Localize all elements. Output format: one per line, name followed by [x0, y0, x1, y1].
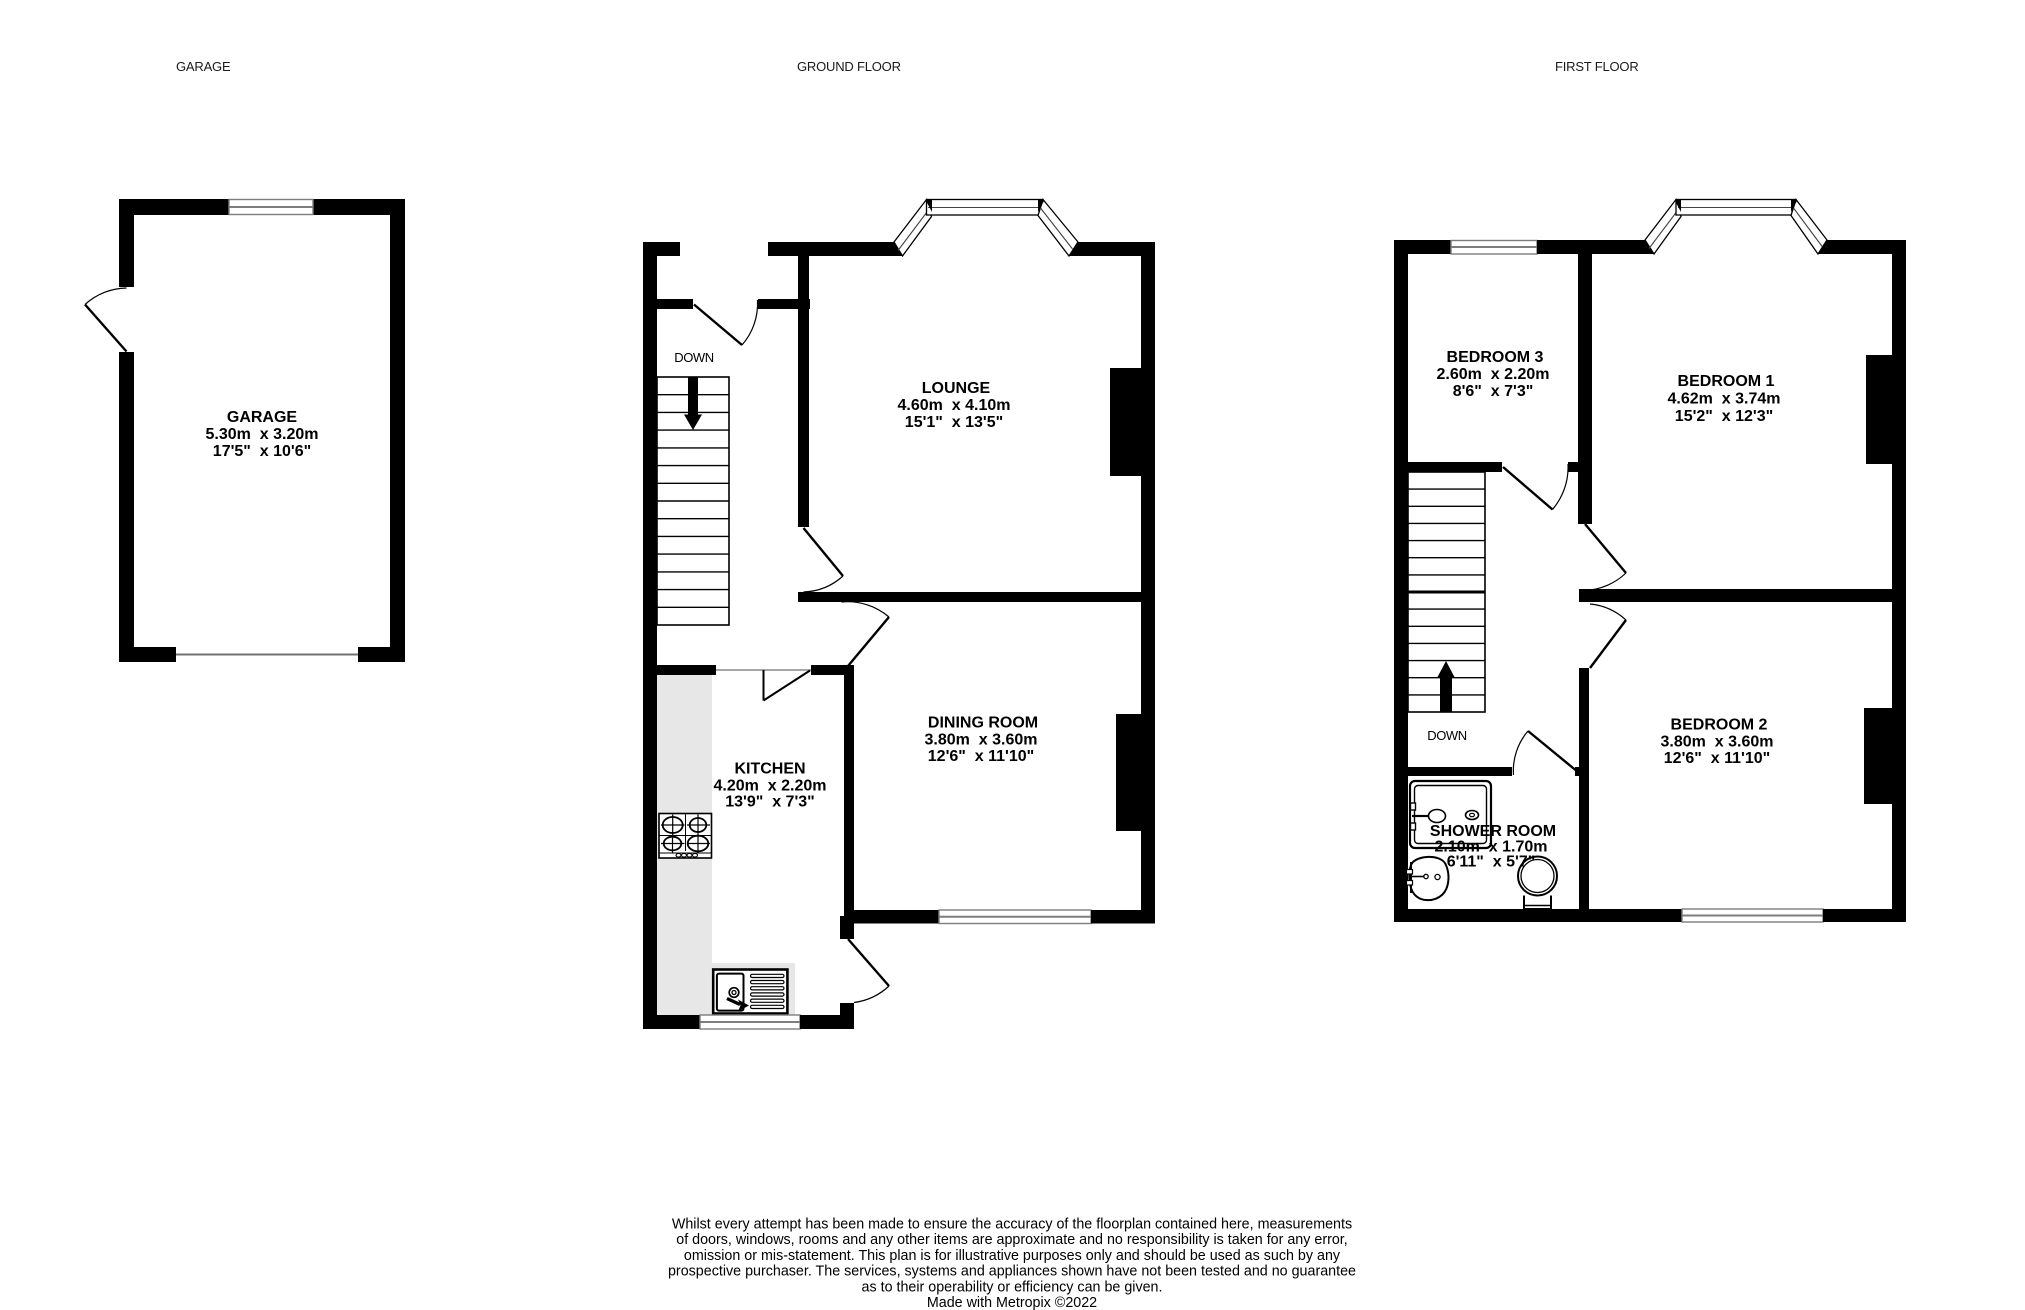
- svg-text:FIRST FLOOR: FIRST FLOOR: [1555, 59, 1639, 74]
- svg-text:4.62m x 3.74m: 4.62m x 3.74m: [1668, 391, 1781, 408]
- svg-text:Made with Metropix ©2022: Made with Metropix ©2022: [927, 1295, 1097, 1310]
- svg-text:omission or mis-statement. Thi: omission or mis-statement. This plan is …: [684, 1248, 1341, 1264]
- svg-text:DOWN: DOWN: [674, 350, 714, 365]
- svg-text:2.60m x 2.20m: 2.60m x 2.20m: [1437, 366, 1550, 383]
- svg-text:of doors, windows, rooms and a: of doors, windows, rooms and any other i…: [676, 1232, 1348, 1248]
- svg-text:GARAGE: GARAGE: [227, 409, 298, 426]
- svg-text:3.80m x 3.60m: 3.80m x 3.60m: [925, 732, 1038, 749]
- svg-text:15'1" x 13'5": 15'1" x 13'5": [905, 414, 1003, 431]
- svg-text:12'6" x 11'10": 12'6" x 11'10": [928, 748, 1034, 765]
- svg-text:12'6" x 11'10": 12'6" x 11'10": [1664, 750, 1770, 767]
- svg-text:DINING ROOM: DINING ROOM: [928, 715, 1038, 732]
- svg-text:17'5" x 10'6": 17'5" x 10'6": [213, 443, 311, 460]
- svg-text:Whilst every attempt has been: Whilst every attempt has been made to en…: [672, 1217, 1352, 1233]
- svg-text:BEDROOM 3: BEDROOM 3: [1447, 349, 1544, 366]
- svg-text:KITCHEN: KITCHEN: [734, 761, 805, 778]
- svg-text:5.30m x 3.20m: 5.30m x 3.20m: [206, 426, 319, 443]
- svg-text:GROUND FLOOR: GROUND FLOOR: [797, 59, 901, 74]
- svg-text:4.20m x 2.20m: 4.20m x 2.20m: [714, 778, 827, 795]
- svg-text:BEDROOM 2: BEDROOM 2: [1671, 717, 1768, 734]
- svg-text:prospective purchaser. The ser: prospective purchaser. The services, sys…: [668, 1264, 1356, 1280]
- svg-text:LOUNGE: LOUNGE: [922, 380, 991, 397]
- svg-text:8'6" x 7'3": 8'6" x 7'3": [1453, 383, 1534, 400]
- svg-text:13'9" x 7'3": 13'9" x 7'3": [725, 794, 815, 811]
- svg-text:SHOWER ROOM: SHOWER ROOM: [1430, 823, 1556, 840]
- svg-text:as to their operability or eff: as to their operability or efficiency ca…: [862, 1279, 1163, 1295]
- svg-text:6'11" x 5'7": 6'11" x 5'7": [1447, 854, 1536, 871]
- svg-text:15'2" x 12'3": 15'2" x 12'3": [1675, 408, 1773, 425]
- svg-text:DOWN: DOWN: [1427, 728, 1467, 743]
- svg-text:GARAGE: GARAGE: [176, 59, 231, 74]
- svg-text:4.60m x 4.10m: 4.60m x 4.10m: [898, 397, 1011, 414]
- svg-text:BEDROOM 1: BEDROOM 1: [1678, 373, 1775, 390]
- svg-text:3.80m x 3.60m: 3.80m x 3.60m: [1661, 734, 1774, 751]
